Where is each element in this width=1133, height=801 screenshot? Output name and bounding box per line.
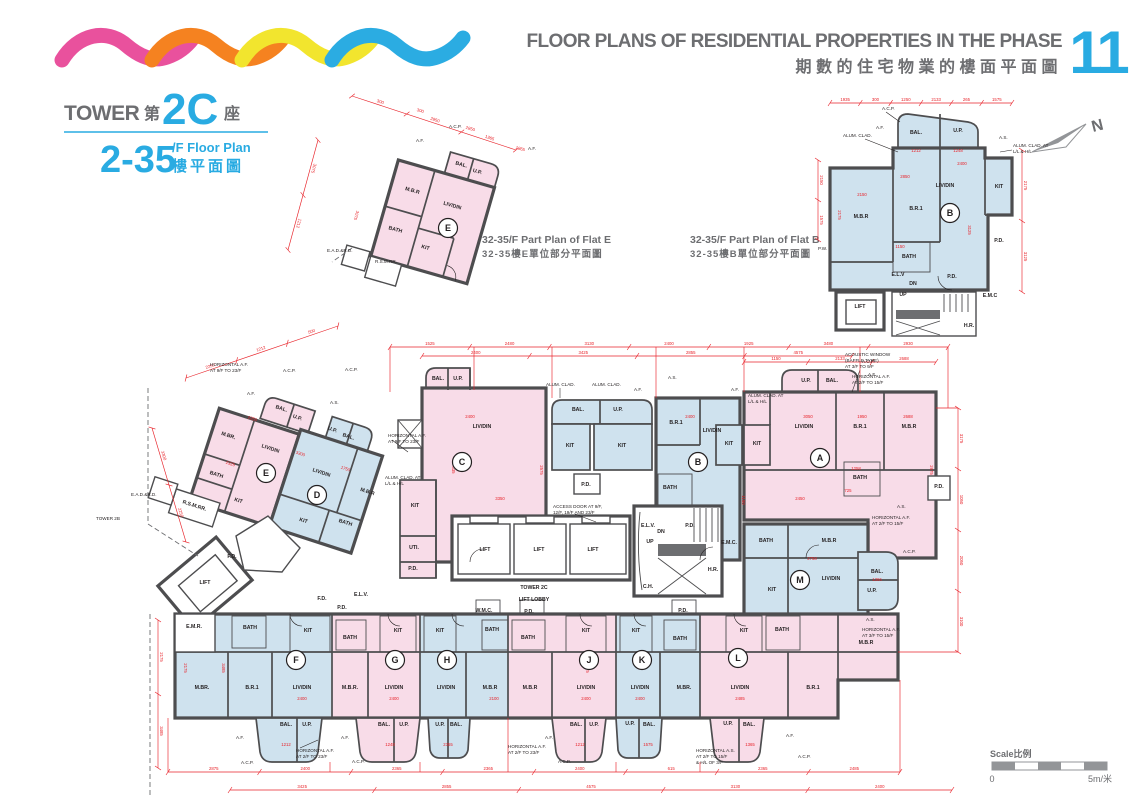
chain-line [352,96,516,150]
dimension-chain: 22501212500 [182,320,341,382]
room-label: F.D. [317,596,327,602]
annotation-label: HORIZONTAL A.S. [696,748,735,753]
scale-bar: Scale比例 0 5m/米 [989,748,1112,784]
chain-label: 2175 [159,652,164,662]
room-label: B.R.1 [245,685,258,691]
main-floor-plan [146,368,950,762]
room-label: M.B.R [902,424,917,430]
dimension-label: 1212 [911,148,921,153]
chain-label: 1575 [992,97,1002,102]
emr-room [175,614,215,652]
room-label: U.P. [613,407,623,413]
room-label: BAL. [871,569,884,575]
dimension-label: 1365 [515,145,526,153]
room-label: KIT [436,628,445,634]
flat-g-fill [332,614,420,718]
annotation-label: AT 2/F TO 23/F [508,750,540,755]
dimension-label: 2485 [735,696,745,701]
room-label: H.R. [964,323,975,329]
chain-label: 4575 [793,350,803,355]
page-title-block: FLOOR PLANS OF RESIDENTIAL PROPERTIES IN… [527,19,1129,86]
scale-seg-3 [1084,762,1107,770]
annotation-label: 12/F, 19/F AND 23/F [553,510,595,515]
room-label: BATH [775,627,789,633]
page-number: 11 [1069,19,1128,86]
room-label: LIV/DIN [936,183,955,189]
annotation-label: HORIZONTAL A.F. [210,362,248,367]
unit-letter: J [586,655,591,665]
chain-label: 2365 [392,766,402,771]
chain-label: 1050 [959,495,964,505]
chain-label: 2930 [903,341,913,346]
lift-door-2 [526,516,554,523]
room-label: KIT [304,628,313,634]
part-plan-b-title-zh: 32-35樓B單位部分平面圖 [690,248,811,260]
dimension-label: 2175 [837,210,842,220]
flat-k-fill [616,614,700,718]
annotation-label: A.F. [247,391,255,396]
dimension-label: 1575 [643,742,653,747]
chain-label: 1250 [901,97,911,102]
part-plan-flat-e: 32-35/F Part Plan of Flat E 32-35樓E單位部分平… [340,132,611,305]
room-label: P.D. [947,274,957,280]
chain-label: 3425 [578,350,588,355]
annotation-label: (BAFFLE TYPE) [845,358,879,363]
annotation-label: A.F. [545,735,553,740]
annotation-label: P.W. [818,246,827,251]
chain-label: 4575 [586,784,596,789]
room-label: M.B.R [854,214,869,220]
chain-label: 3100 [959,617,964,627]
chain-label: 2855 [686,350,696,355]
room-label: BATH [902,254,916,260]
chain-tick [404,111,410,118]
dimension-label: 2175 [183,663,188,673]
room-label: P.D. [408,566,418,572]
room-label: BATH [663,485,677,491]
floor-suffix-en: /F Floor Plan [172,140,251,155]
dimension-label: 2450 [795,496,805,501]
brochure-page: TOWER 第 2C 座 2-35 /F Floor Plan 樓平面圖 FLO… [0,0,1133,801]
room-label: TOWER 2C [520,585,548,591]
room-label: KIT [740,628,749,634]
tower-label-zh-prefix: 第 [144,104,160,123]
room-label: KIT [753,441,762,447]
chain-tick [349,93,355,100]
annotation-label: A.C.P. [241,760,254,765]
room-label: KIT [618,443,627,449]
room-label: BAL. [910,130,923,136]
dimension-label: 2400 [581,696,591,701]
chain-tick [285,247,292,252]
dimension-label: 3350 [495,496,505,501]
chain-label: 2485 [849,766,859,771]
chain-label: 2400 [471,350,481,355]
chain-label: 1925 [744,341,754,346]
room-label: BAL. [743,722,756,728]
room-label: BAL. [826,378,839,384]
room-label: B.R.1 [909,206,922,212]
room-label: U.P. [435,722,445,728]
room-label: P.D. [994,238,1004,244]
scale-start: 0 [989,774,994,784]
room-label: BAL. [572,407,585,413]
dimension-chain: 2400342528554575 [420,350,854,359]
annotation-label: ALUM. CLAD. AT [748,393,784,398]
dimension-label: 1212 [281,742,291,747]
room-label: U.P. [801,378,811,384]
room-label: KIT [632,628,641,634]
dimension-label: 1366 [872,577,882,582]
dimension-label: 2675 [929,465,934,475]
room-label: BATH [485,627,499,633]
room-label: U.P. [867,588,877,594]
room-label: LIFT [534,547,546,553]
unit-letter: K [639,655,646,665]
chain-line [186,326,338,378]
room-label: U.P. [399,722,409,728]
room-label: LIV/DIN [703,428,722,434]
part-plan-e-title-en: 32-35/F Part Plan of Flat E [482,234,611,246]
floor-plan-canvas: TOWER 第 2C 座 2-35 /F Floor Plan 樓平面圖 FLO… [0,0,1133,801]
main-stair-landing [658,544,706,556]
room-label: LIV/DIN [577,685,596,691]
room-label: LIFT [588,547,600,553]
dimension-chain: 1525248031302400192534802930 [388,341,950,350]
room-label: B.R.1 [806,685,819,691]
annotation-label: A.S. [866,617,875,622]
chain-label: 3425 [297,784,307,789]
chain-tick [315,137,322,142]
room-label: BATH [521,635,535,641]
annotation-label: A.C.P. [882,106,895,111]
chain-tick [183,539,190,545]
dimension-label: 1212 [575,742,585,747]
annotation-label: E.A.D.&R.D. [131,492,157,497]
annotation-label: A.F. [876,125,884,130]
flat-j-fill [508,614,616,718]
annotation-label: A.S. [668,375,677,380]
room-label: P.D. [581,482,591,488]
annotation-label: HORIZONTAL A.F. [862,627,900,632]
annotation-label: A.F. [341,735,349,740]
room-label: P.D. [678,608,688,614]
chain-label: 2850 [430,116,441,124]
part-plan-flat-b: 32-35/F Part Plan of Flat B 32-35樓B單位部分平… [690,114,1012,336]
chain-label: 615 [668,766,676,771]
dimension-chain: 1935300125021332651575 [828,97,1014,106]
chain-label: 1525 [425,341,435,346]
unit-letter: F [293,655,299,665]
annotation-label: HORIZONTAL A.F. [296,748,334,753]
room-label: BAL. [643,722,656,728]
dimension-label: 2850 [900,174,910,179]
brand-waves-logo [62,35,463,60]
room-label: KIT [768,587,777,593]
room-label: C.H. [643,584,654,590]
chain-label: 1365 [484,134,495,142]
room-label: BATH [673,636,687,642]
annotation-label: AT 2/F TO 15/F [696,754,728,759]
room-label: E.L.V. [641,523,655,529]
room-label: KIT [394,628,403,634]
scale-label: Scale比例 [990,748,1032,759]
dimension-chain: 21501575 [815,158,824,242]
chain-tick [300,192,307,197]
annotation-label: A.F. [236,735,244,740]
room-label: U.P. [625,721,635,727]
chain-label: 3125 [1023,252,1028,262]
tower-label-en: TOWER [64,102,140,125]
annotation-label: ALUM. CLAD. [546,382,575,387]
annotation-label: AT 2/F TO 15/F [852,380,884,385]
room-label: U.P. [302,722,312,728]
chain-label: 2400 [300,766,310,771]
annotation-label: AT 3/F TO 9/F [845,364,874,369]
dimension-label: 1248 [953,148,963,153]
dimension-label: 2758 [807,556,817,561]
annotation-label: AT 2/F TO 23/F [296,754,328,759]
chain-label: 2400 [575,766,585,771]
room-label: UTI. [409,545,419,551]
annotation-label: L/L & H/L [385,481,404,486]
room-label: DN [657,529,665,535]
chain-tick [183,375,189,382]
dimension-label: 2400 [465,414,475,419]
main-stair [634,506,722,596]
flat-l-mbr-fill [838,614,898,680]
room-label: LIV/DIN [473,424,492,430]
dimension-label: 2400 [957,161,967,166]
dimension-label: 3125 [967,225,972,235]
unit-letter: B [695,457,702,467]
unit-letter: M [796,575,804,585]
annotation-label: HORIZONTAL A.F. [872,515,910,520]
chain-label: 2480 [505,341,515,346]
dimension-label: 2575 [539,465,544,475]
room-label: LIV/DIN [437,685,456,691]
dimension-label: 725 [844,488,852,493]
annotation-label: HORIZONTAL A.F. [508,744,546,749]
scale-seg-2 [1038,762,1061,770]
chain-tick [335,323,341,330]
room-label: M.B.R [859,640,874,646]
chain-label: 3175 [959,434,964,444]
dimension-chain: 30028501365 [349,90,520,154]
annotation-label: A.S. [999,135,1008,140]
annotation-label: A.F. [416,138,424,143]
room-label: E.L.V [892,272,906,278]
room-label: U.P. [453,376,463,382]
dimension-label: 2400 [389,696,399,701]
annotation-label: A.S. [330,400,339,405]
room-label: LIFT [200,580,212,586]
annotation-label: A.C.P. [449,124,462,129]
room-label: E.M.C [983,293,998,299]
room-label: P.D. [524,609,534,615]
dimension-chain: 115021332688 [742,356,938,365]
chain-label: 3485 [159,726,164,736]
part-plan-e-title-zh: 32-35樓E單位部分平面圖 [482,248,603,260]
room-label: LIFT [480,547,492,553]
flat-a-balcony [782,370,858,392]
room-label: LIV/DIN [822,576,841,582]
dimension-label: 1258 [851,466,861,471]
room-label: M.B.R [523,685,538,691]
dimension-label: 2355 [443,742,453,747]
annotation-label: A.F. [634,387,642,392]
chain-label: 2875 [209,766,219,771]
room-label: KIT [411,503,420,509]
chain-label: 2133 [835,356,845,361]
chain-label: 2150 [819,175,824,185]
annotation-label: ALUM. CLAD. AT [385,475,421,480]
annotation-label: R.S.M.RR. [375,259,397,264]
dimension-chain: 2875240023652365240061523652485 [166,766,902,775]
tower-label-zh-suffix: 座 [223,104,240,123]
dashed-boundary [148,524,198,556]
chain-label: 1150 [771,356,781,361]
room-label: M.B.R [483,685,498,691]
room-label: E.L.V. [354,592,368,598]
dimension-label: 2688 [903,414,913,419]
chain-label: 265 [963,97,971,102]
chain-label: 2365 [758,766,768,771]
chain-label: 1212 [256,345,267,353]
dimension-label: 3075 [353,210,361,221]
annotation-label: ACCESS DOOR AT 9/F, [553,504,602,509]
annotation-label: A.F. [731,387,739,392]
chain-tick [458,129,464,136]
annotation-label: ACOUSTIC WINDOW [845,352,891,357]
annotation-label: A.F. [528,146,536,151]
dimension-chain: 21753125 [1019,148,1028,294]
annotation-label: ALUM. CLAD. AT [1013,143,1049,148]
room-label: UP [646,539,654,545]
annotation-label: HORIZONTAL A.F. [852,374,890,379]
annotation-label: AT 3/F TO 15/F [862,633,894,638]
room-label: UP [899,292,907,298]
dimension-chain: 34252855457531302400 [228,784,954,793]
unit-letter: G [391,655,398,665]
lift-door-1 [470,516,498,523]
annotation-label: TOWER 2B [96,516,120,521]
part-plan-e-geometry [340,132,501,305]
annotation-label: ALUM. CLAD. [592,382,621,387]
mid-balcony [552,400,652,424]
dimension-label: 1365 [745,742,755,747]
dimension-label: 2850 [465,125,476,133]
annotation-label: HORIZONTAL A.F. [388,433,426,438]
room-label: U.P. [953,128,963,134]
dimension-label: 1150 [741,495,746,505]
leader-line [865,139,898,152]
room-label: LIV/DIN [293,685,312,691]
part-plan-b-title-en: 32-35/F Part Plan of Flat B [690,234,820,246]
unit-letter: C [459,457,466,467]
room-label: BAL. [450,722,463,728]
room-label: KIT [582,628,591,634]
room-label: U.P. [589,722,599,728]
room-label: W.M.C. [475,608,493,614]
dimension-label: 1150 [895,244,905,249]
room-label: P.D. [685,523,695,529]
chain-label: 1575 [819,215,824,225]
room-label: U.P. [723,721,733,727]
annotation-label: L/L & H/L [748,399,767,404]
annotation-label: A.F. [786,733,794,738]
room-label: DN [909,281,917,287]
floor-range: 2-35 [100,139,176,181]
annotation-label: AT 2/F TO 15/F [872,521,904,526]
dimension-label: 3050 [803,414,813,419]
chain-label: 2688 [899,356,909,361]
room-label: LIV/DIN [385,685,404,691]
annotation-label: A.C.P. [558,759,571,764]
dimension-label: 2400 [635,696,645,701]
room-label: BAL. [570,722,583,728]
room-label: BAL. [280,722,293,728]
scale-seg-1 [992,762,1015,770]
flat-l-fill [700,614,838,718]
annotation-label: A.C.P. [283,368,296,373]
chain-label: 2365 [483,766,493,771]
chain-tick [284,340,290,347]
leader-line [1000,150,1012,152]
chain-label: 2855 [442,784,452,789]
room-label: KIT [995,184,1004,190]
dimension-label: 1248 [385,742,395,747]
room-label: M.B.R. [342,685,359,691]
chain-label: 3130 [585,341,595,346]
room-label: E.M.C. [721,540,737,546]
dimension-label: 2100 [489,696,499,701]
leader-line [886,112,900,122]
room-label: P.D. [934,484,944,490]
chain-label: 2400 [664,341,674,346]
room-label: M.BR. [195,685,210,691]
dimension-label: 300 [416,107,425,114]
flat-c-service-column [400,480,436,578]
room-label: BAL. [378,722,391,728]
unit-letter: A [817,453,824,463]
unit-letter: B [947,208,954,218]
tower-id: 2C [162,85,218,134]
room-label: LIFT LOBBY [519,597,550,603]
annotation-label: A.C.P. [798,754,811,759]
annotation-label: AT 9/F TO 23/F [210,368,242,373]
dimension-label: 1950 [857,414,867,419]
chain-label: 2133 [931,97,941,102]
annotation-label: A.C.P. [352,759,365,764]
annotation-label: & H/L OF 3/F [696,760,723,765]
unit-letter: E [263,468,269,478]
room-label: H.R. [708,567,719,573]
annotation-label: A.S. [897,504,906,509]
flat-b-stair [892,292,976,336]
room-label: BATH [759,538,773,544]
page-title-zh: 期數的住宅物業的樓面平面圖 [795,57,1062,76]
chain-label: 2175 [1023,181,1028,191]
annotation-label: E.A.D.&R.D. [327,248,353,253]
chain-label: 2400 [875,784,885,789]
room-label: KIT [725,441,734,447]
unit-letter: E [445,223,451,233]
room-label: E.M.R. [186,624,202,630]
page-title-en: FLOOR PLANS OF RESIDENTIAL PROPERTIES IN… [527,31,1062,52]
room-label: LIFT [855,304,867,310]
unit-letter: H [444,655,451,665]
